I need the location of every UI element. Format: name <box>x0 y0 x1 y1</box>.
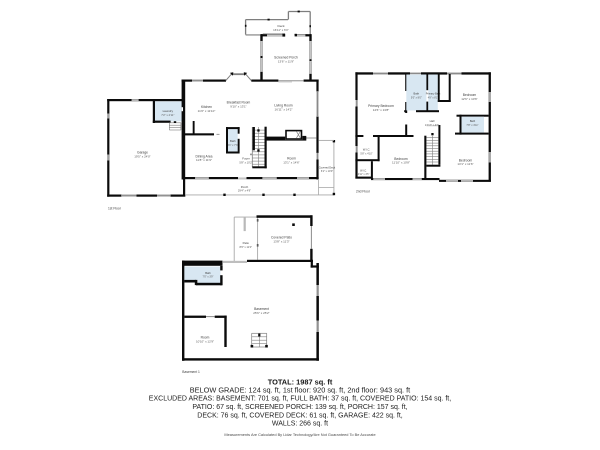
svg-text:Measurements Are Calculated By: Measurements Are Calculated By Lidar Tec… <box>224 432 375 437</box>
svg-text:4'8" x 8'1": 4'8" x 8'1" <box>428 96 439 99</box>
svg-text:Bath: Bath <box>230 139 236 143</box>
svg-text:WALLS: 266 sq. ft: WALLS: 266 sq. ft <box>272 421 328 428</box>
svg-text:11'10" x 10'8": 11'10" x 10'8" <box>392 161 410 165</box>
svg-text:13'8" x 11'3": 13'8" x 11'3" <box>273 240 289 244</box>
svg-text:EXCLUDED AREAS: BASEMENT: 701: EXCLUDED AREAS: BASEMENT: 701 sq. ft, FU… <box>149 396 451 403</box>
svg-text:Bath: Bath <box>470 119 476 123</box>
svg-text:13'1" x 11'6": 13'1" x 11'6" <box>457 162 473 166</box>
svg-text:Bath: Bath <box>414 92 420 96</box>
svg-text:16'11" x 14'2": 16'11" x 14'2" <box>275 108 293 112</box>
svg-text:7'2" x 4'11": 7'2" x 4'11" <box>161 113 174 117</box>
svg-text:Hall: Hall <box>430 119 435 123</box>
svg-text:Covered Deck: Covered Deck <box>319 165 336 169</box>
svg-text:12'6" x 10'6": 12'6" x 10'6" <box>461 97 477 101</box>
svg-text:5'1" x 7'3": 5'1" x 7'3" <box>227 144 238 147</box>
svg-text:W.I.C.: W.I.C. <box>363 148 371 152</box>
svg-text:11'0" x 11'10": 11'0" x 11'10" <box>198 109 216 113</box>
svg-text:7'0" x 3'9": 7'0" x 3'9" <box>203 276 214 279</box>
svg-text:Bath: Bath <box>205 271 211 275</box>
svg-text:Patio: Patio <box>243 241 250 245</box>
svg-text:10'10" x 12'9": 10'10" x 12'9" <box>196 339 214 343</box>
svg-text:14'6" x 13'8": 14'6" x 13'8" <box>373 108 389 112</box>
svg-text:Laundry: Laundry <box>163 109 174 113</box>
svg-text:7'8" x 4'11": 7'8" x 4'11" <box>466 124 478 127</box>
svg-text:DECK: 76 sq. ft, COVERED DECK:: DECK: 76 sq. ft, COVERED DECK: 61 sq. ft… <box>197 412 402 419</box>
svg-text:Porch: Porch <box>241 185 249 189</box>
svg-text:5'8" x 4'10": 5'8" x 4'10" <box>360 152 372 155</box>
svg-text:9'10" x 13'1": 9'10" x 13'1" <box>230 104 246 108</box>
svg-text:5'8" x 10'2": 5'8" x 10'2" <box>239 161 252 165</box>
svg-text:11'8" x 11'9": 11'8" x 11'9" <box>196 158 212 162</box>
svg-text:Basement 1: Basement 1 <box>182 370 200 374</box>
svg-text:W.I.C.: W.I.C. <box>360 169 367 172</box>
svg-text:16'11" x 6'0": 16'11" x 6'0" <box>273 28 289 32</box>
svg-text:13'6" x 11'9": 13'6" x 11'9" <box>278 60 294 64</box>
svg-text:13'1" x 14'6": 13'1" x 14'6" <box>283 161 299 165</box>
svg-text:13'10" x 4'0": 13'10" x 4'0" <box>425 123 439 127</box>
svg-text:BELOW GRADE: 124 sq. ft, 1st f: BELOW GRADE: 124 sq. ft, 1st floor: 920 … <box>190 385 410 394</box>
svg-text:1st Floor: 1st Floor <box>108 206 122 210</box>
svg-text:2nd Floor: 2nd Floor <box>356 189 371 193</box>
svg-text:8'6" x 11'0": 8'6" x 11'0" <box>240 245 253 249</box>
svg-text:Foyer: Foyer <box>242 157 249 161</box>
svg-text:25'6" x 25'2": 25'6" x 25'2" <box>253 311 269 315</box>
svg-text:5'0" x 8'0": 5'0" x 8'0" <box>411 96 422 99</box>
svg-text:29'4" x 4'9": 29'4" x 4'9" <box>238 189 251 193</box>
svg-text:6'1" x 10'0": 6'1" x 10'0" <box>321 170 333 173</box>
svg-text:19'5" x 24'0": 19'5" x 24'0" <box>134 155 150 159</box>
svg-text:PATIO: 67 sq. ft, SCREENED POR: PATIO: 67 sq. ft, SCREENED PORCH: 139 sq… <box>192 404 407 411</box>
svg-text:4'11" x 4'5": 4'11" x 4'5" <box>358 173 370 176</box>
